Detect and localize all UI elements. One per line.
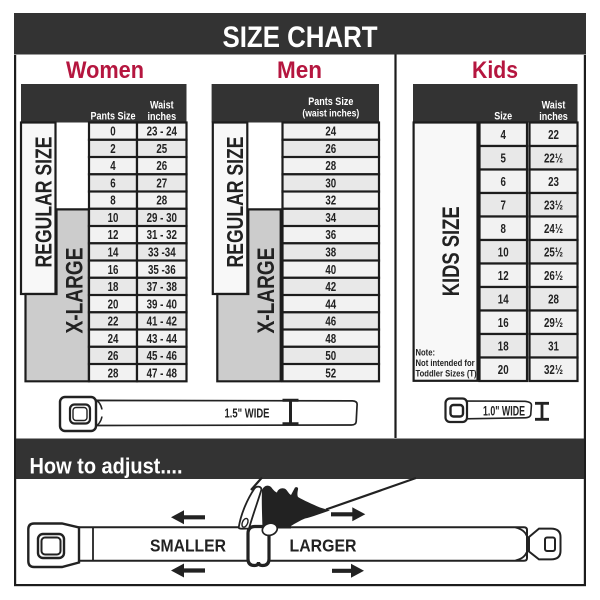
svg-text:5: 5 xyxy=(501,151,506,165)
svg-text:33 -34: 33 -34 xyxy=(148,246,176,260)
svg-text:8: 8 xyxy=(110,194,115,208)
svg-text:31: 31 xyxy=(548,339,559,353)
svg-text:12: 12 xyxy=(108,228,119,242)
svg-text:14: 14 xyxy=(498,292,509,306)
svg-text:24: 24 xyxy=(108,332,119,346)
svg-text:6: 6 xyxy=(110,177,115,191)
svg-text:26: 26 xyxy=(156,159,167,173)
svg-text:7: 7 xyxy=(501,198,506,212)
svg-text:Waist: Waist xyxy=(150,99,174,111)
svg-text:10: 10 xyxy=(498,245,509,259)
svg-text:Size: Size xyxy=(494,110,512,122)
svg-text:16: 16 xyxy=(108,263,119,277)
svg-text:Toddler Sizes (T): Toddler Sizes (T) xyxy=(416,368,477,378)
svg-text:36: 36 xyxy=(325,228,336,242)
svg-text:26: 26 xyxy=(325,142,336,156)
svg-text:SMALLER: SMALLER xyxy=(150,536,226,556)
svg-text:How to adjust....: How to adjust.... xyxy=(30,453,183,478)
svg-text:KIDS SIZE: KIDS SIZE xyxy=(438,206,465,296)
svg-text:2: 2 xyxy=(110,142,115,156)
svg-text:Pants Size: Pants Size xyxy=(90,110,135,122)
svg-text:25: 25 xyxy=(156,142,167,156)
svg-text:Pants Size: Pants Size xyxy=(308,96,353,108)
svg-text:40: 40 xyxy=(325,263,336,277)
svg-text:1.0" WIDE: 1.0" WIDE xyxy=(483,404,525,419)
svg-text:30: 30 xyxy=(325,177,336,191)
svg-text:22: 22 xyxy=(108,315,119,329)
svg-text:28: 28 xyxy=(548,292,559,306)
svg-text:44: 44 xyxy=(325,297,336,311)
svg-text:22½: 22½ xyxy=(544,151,563,165)
svg-text:43 - 44: 43 - 44 xyxy=(147,332,177,346)
svg-text:39 - 40: 39 - 40 xyxy=(147,297,177,311)
svg-text:REGULAR SIZE: REGULAR SIZE xyxy=(222,137,248,268)
svg-text:29 - 30: 29 - 30 xyxy=(147,211,177,225)
svg-text:50: 50 xyxy=(325,349,336,363)
svg-text:28: 28 xyxy=(156,194,167,208)
svg-text:24: 24 xyxy=(325,125,336,139)
svg-text:41 - 42: 41 - 42 xyxy=(147,315,177,329)
svg-text:12: 12 xyxy=(498,269,509,283)
svg-text:25½: 25½ xyxy=(544,245,563,259)
svg-text:28: 28 xyxy=(325,159,336,173)
svg-text:8: 8 xyxy=(501,222,506,236)
svg-text:(waist inches): (waist inches) xyxy=(302,108,359,120)
svg-text:52: 52 xyxy=(325,366,336,380)
svg-text:18: 18 xyxy=(498,339,509,353)
svg-text:29½: 29½ xyxy=(544,316,563,330)
svg-text:32½: 32½ xyxy=(544,363,563,377)
svg-text:26½: 26½ xyxy=(544,269,563,283)
svg-text:Note:: Note: xyxy=(416,348,436,358)
svg-text:23½: 23½ xyxy=(544,198,563,212)
svg-text:16: 16 xyxy=(498,316,509,330)
svg-text:Women: Women xyxy=(66,57,144,84)
svg-text:22: 22 xyxy=(548,128,559,142)
svg-text:inches: inches xyxy=(148,111,177,123)
svg-text:23: 23 xyxy=(548,175,559,189)
svg-text:32: 32 xyxy=(325,194,336,208)
svg-text:X-LARGE: X-LARGE xyxy=(253,248,280,334)
svg-text:28: 28 xyxy=(108,366,119,380)
svg-text:X-LARGE: X-LARGE xyxy=(61,248,88,334)
svg-text:20: 20 xyxy=(498,363,509,377)
svg-text:6: 6 xyxy=(501,175,506,189)
svg-text:38: 38 xyxy=(325,246,336,260)
svg-text:Not intended for: Not intended for xyxy=(416,358,476,368)
svg-text:42: 42 xyxy=(325,280,336,294)
svg-text:inches: inches xyxy=(539,111,568,123)
svg-text:10: 10 xyxy=(108,211,119,225)
svg-text:26: 26 xyxy=(108,349,119,363)
svg-text:31 - 32: 31 - 32 xyxy=(147,228,177,242)
svg-text:14: 14 xyxy=(108,246,119,260)
svg-text:Waist: Waist xyxy=(542,99,566,111)
svg-text:23 - 24: 23 - 24 xyxy=(147,125,177,139)
svg-text:24½: 24½ xyxy=(544,222,563,236)
svg-text:35 -36: 35 -36 xyxy=(148,263,176,277)
svg-text:27: 27 xyxy=(156,177,167,191)
svg-text:34: 34 xyxy=(325,211,336,225)
svg-text:4: 4 xyxy=(110,159,115,173)
svg-text:18: 18 xyxy=(108,280,119,294)
svg-text:Men: Men xyxy=(277,57,322,84)
svg-text:SIZE CHART: SIZE CHART xyxy=(223,21,378,54)
svg-text:48: 48 xyxy=(325,332,336,346)
svg-text:37 - 38: 37 - 38 xyxy=(147,280,177,294)
svg-text:4: 4 xyxy=(501,128,506,142)
svg-text:Kids: Kids xyxy=(472,57,518,84)
svg-text:45 - 46: 45 - 46 xyxy=(147,349,177,363)
svg-text:47 - 48: 47 - 48 xyxy=(147,366,177,380)
svg-text:1.5" WIDE: 1.5" WIDE xyxy=(225,405,270,420)
svg-text:REGULAR SIZE: REGULAR SIZE xyxy=(30,137,56,268)
svg-text:46: 46 xyxy=(325,315,336,329)
svg-text:LARGER: LARGER xyxy=(290,536,357,556)
svg-text:20: 20 xyxy=(108,297,119,311)
svg-text:0: 0 xyxy=(110,125,115,139)
